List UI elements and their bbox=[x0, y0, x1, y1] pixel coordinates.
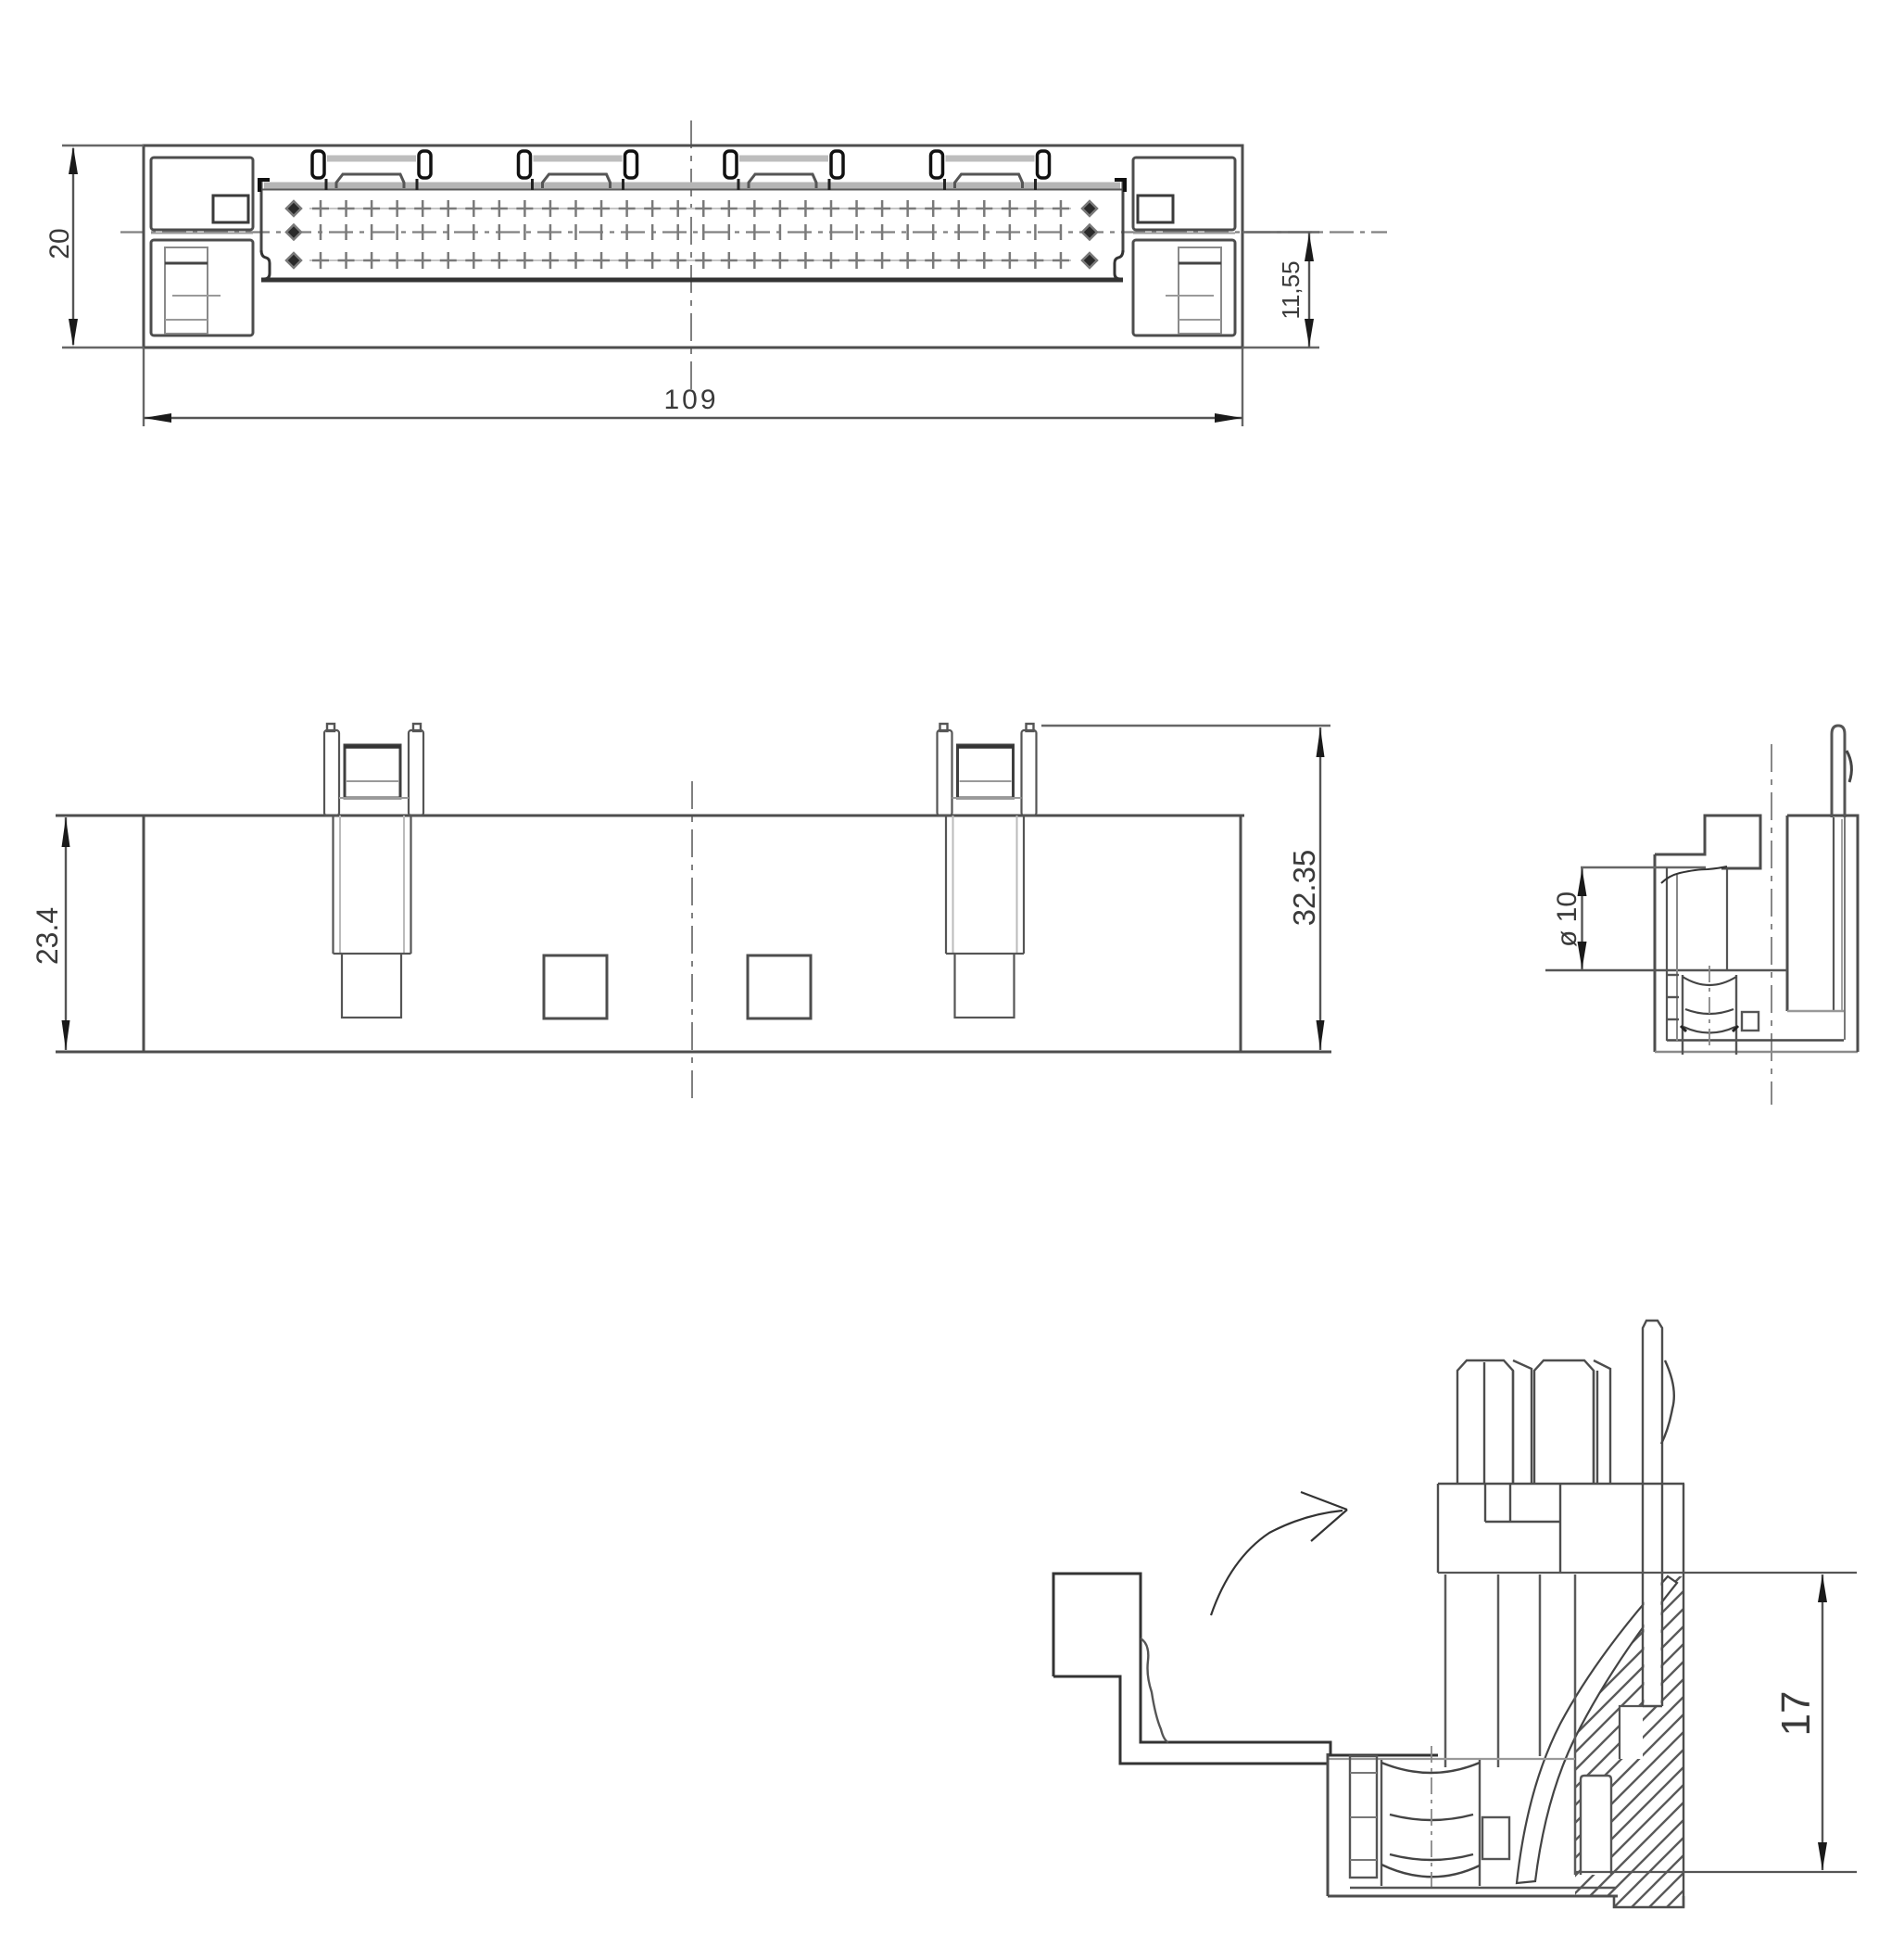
svg-text:109: 109 bbox=[663, 385, 718, 415]
svg-text:ø 10: ø 10 bbox=[1552, 892, 1582, 947]
svg-text:17: 17 bbox=[1773, 1691, 1819, 1737]
svg-text:32.35: 32.35 bbox=[1287, 850, 1321, 927]
svg-text:23.4: 23.4 bbox=[31, 907, 64, 965]
svg-text:11,55: 11,55 bbox=[1277, 260, 1305, 319]
svg-text:20: 20 bbox=[44, 228, 75, 259]
